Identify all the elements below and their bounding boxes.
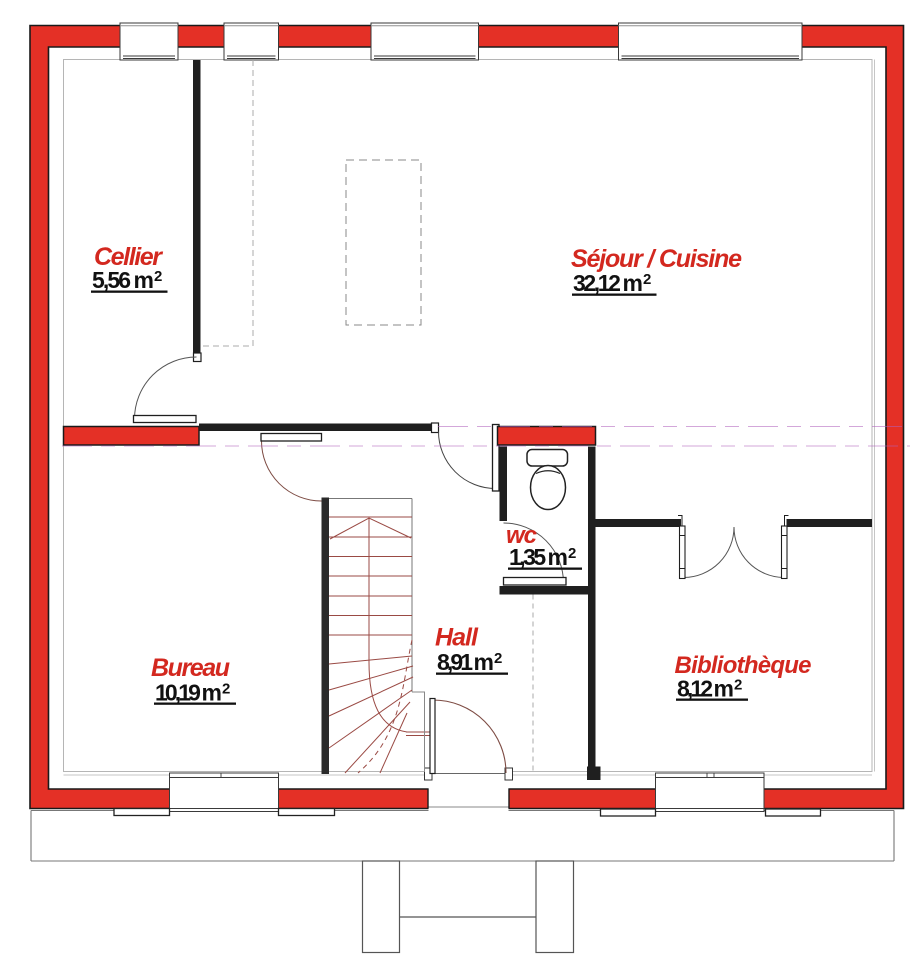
svg-text:2: 2 [222,681,230,698]
svg-text:Hall: Hall [435,624,479,652]
svg-text:Bureau: Bureau [151,654,230,682]
svg-text:8,12 m: 8,12 m [677,676,734,702]
svg-text:1,35 m: 1,35 m [509,544,568,570]
svg-text:32,12 m: 32,12 m [573,270,643,296]
svg-text:2: 2 [568,545,576,562]
svg-text:5,56 m: 5,56 m [92,267,154,293]
svg-text:Séjour / Cuisine: Séjour / Cuisine [571,245,742,273]
svg-text:2: 2 [734,677,742,694]
svg-text:2: 2 [643,271,651,288]
svg-text:2: 2 [494,650,502,667]
svg-text:2: 2 [154,268,162,285]
svg-text:8,91 m: 8,91 m [437,649,494,675]
svg-text:10,19 m: 10,19 m [155,680,222,706]
